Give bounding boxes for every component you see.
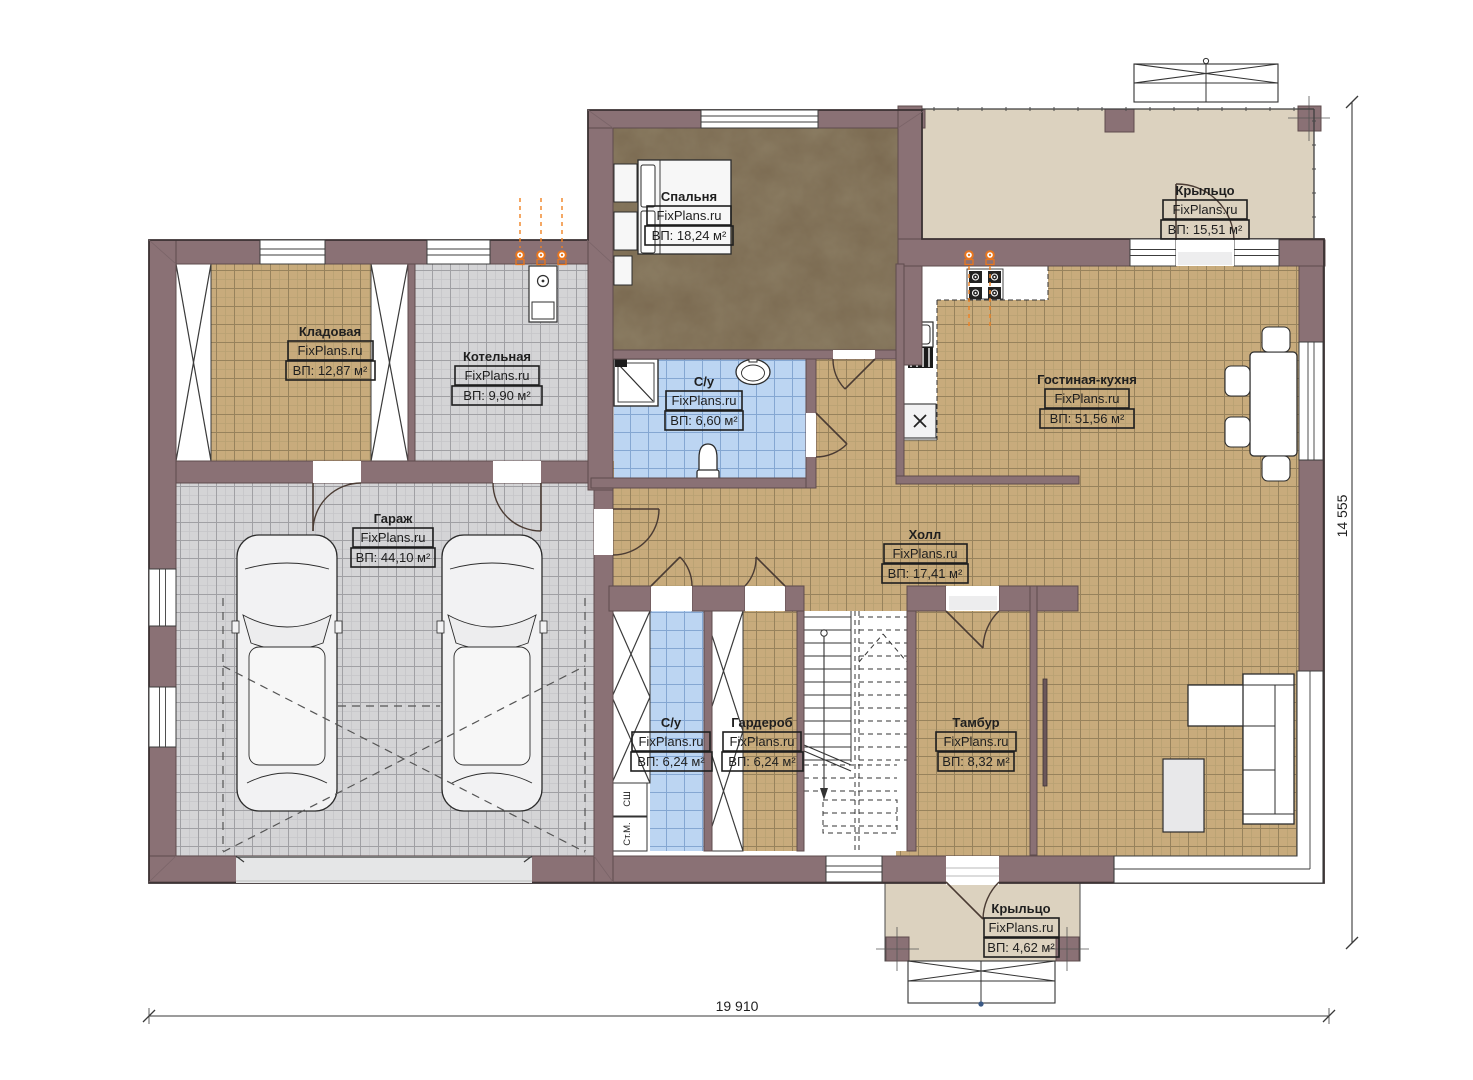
svg-text:FixPlans.ru: FixPlans.ru	[638, 734, 703, 749]
svg-text:FixPlans.ru: FixPlans.ru	[464, 368, 529, 383]
svg-text:FixPlans.ru: FixPlans.ru	[892, 546, 957, 561]
svg-text:Крыльцо: Крыльцо	[991, 901, 1050, 916]
svg-text:Ст.М.: Ст.М.	[622, 822, 633, 845]
svg-text:ВП: 6,60 м²: ВП: 6,60 м²	[670, 413, 738, 428]
svg-text:СШ: СШ	[622, 791, 633, 807]
svg-text:ВП: 44,10 м²: ВП: 44,10 м²	[356, 550, 431, 565]
svg-text:FixPlans.ru: FixPlans.ru	[360, 530, 425, 545]
svg-text:FixPlans.ru: FixPlans.ru	[671, 393, 736, 408]
svg-text:FixPlans.ru: FixPlans.ru	[729, 734, 794, 749]
svg-text:ВП: 4,62 м²: ВП: 4,62 м²	[987, 940, 1055, 955]
svg-text:ВП: 6,24 м²: ВП: 6,24 м²	[728, 754, 796, 769]
svg-text:FixPlans.ru: FixPlans.ru	[1172, 202, 1237, 217]
svg-text:Гостиная-кухня: Гостиная-кухня	[1037, 372, 1137, 387]
svg-text:FixPlans.ru: FixPlans.ru	[1054, 391, 1119, 406]
svg-text:ВП: 15,51 м²: ВП: 15,51 м²	[1168, 222, 1243, 237]
svg-text:FixPlans.ru: FixPlans.ru	[943, 734, 1008, 749]
svg-text:ВП: 6,24 м²: ВП: 6,24 м²	[637, 754, 705, 769]
svg-text:ВП: 9,90 м²: ВП: 9,90 м²	[463, 388, 531, 403]
svg-text:Гараж: Гараж	[374, 511, 414, 526]
svg-text:ВП: 12,87 м²: ВП: 12,87 м²	[293, 363, 368, 378]
svg-text:Крыльцо: Крыльцо	[1175, 183, 1234, 198]
svg-text:Спальня: Спальня	[661, 189, 717, 204]
svg-text:Гардероб: Гардероб	[731, 715, 792, 730]
svg-text:С/у: С/у	[661, 715, 682, 730]
svg-text:ВП: 18,24 м²: ВП: 18,24 м²	[652, 228, 727, 243]
svg-text:FixPlans.ru: FixPlans.ru	[988, 920, 1053, 935]
svg-text:ВП: 17,41 м²: ВП: 17,41 м²	[888, 566, 963, 581]
svg-text:19 910: 19 910	[716, 998, 759, 1014]
svg-text:ВП: 8,32 м²: ВП: 8,32 м²	[942, 754, 1010, 769]
svg-text:Котельная: Котельная	[463, 349, 531, 364]
svg-text:ВП: 51,56 м²: ВП: 51,56 м²	[1050, 411, 1125, 426]
svg-text:FixPlans.ru: FixPlans.ru	[297, 343, 362, 358]
svg-text:Холл: Холл	[909, 527, 942, 542]
svg-text:Кладовая: Кладовая	[299, 324, 361, 339]
svg-text:FixPlans.ru: FixPlans.ru	[656, 208, 721, 223]
svg-text:14 555: 14 555	[1334, 494, 1350, 537]
svg-text:С/у: С/у	[694, 374, 715, 389]
svg-text:Тамбур: Тамбур	[952, 715, 999, 730]
